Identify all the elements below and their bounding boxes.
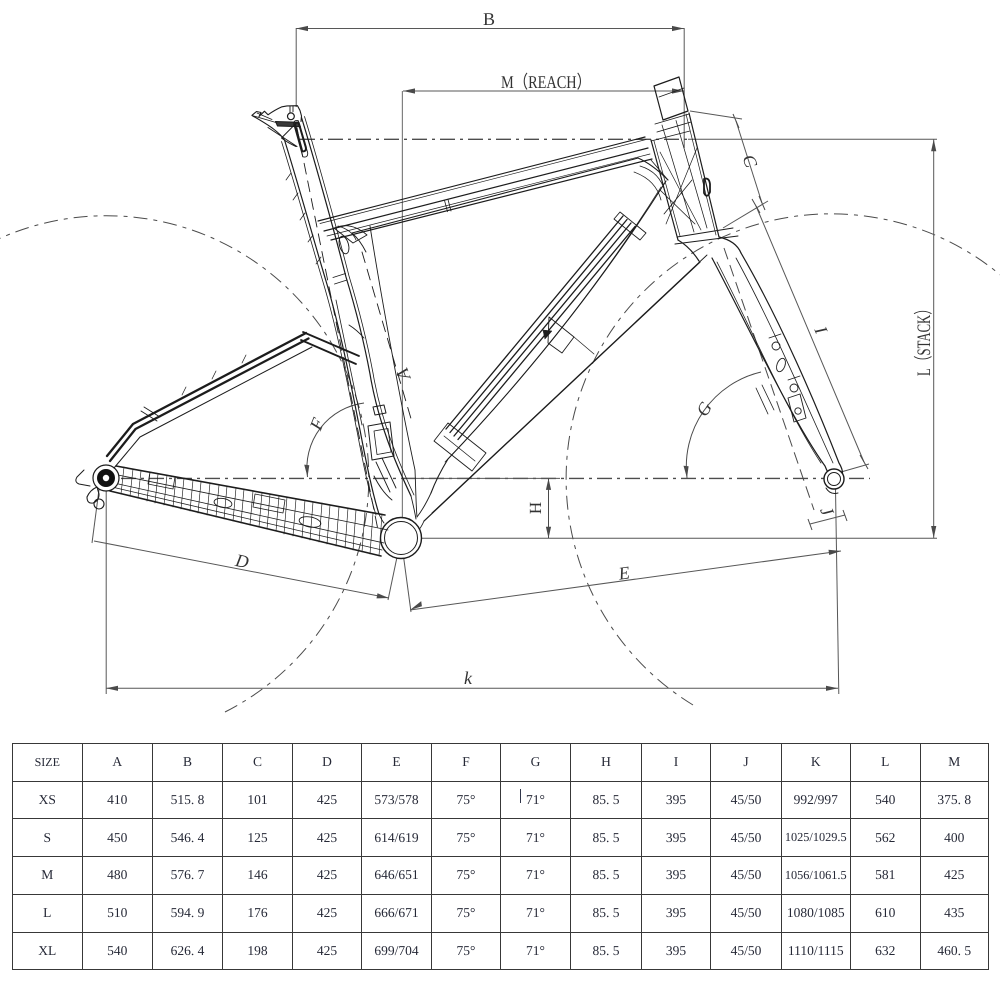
svg-text:G: G — [692, 398, 716, 419]
svg-text:L（STACK）: L（STACK） — [913, 302, 935, 376]
svg-text:k: k — [464, 668, 473, 688]
svg-text:B: B — [483, 9, 495, 29]
svg-text:F: F — [305, 414, 328, 434]
svg-text:E: E — [616, 562, 631, 583]
svg-text:C: C — [739, 152, 762, 171]
svg-text:I: I — [810, 322, 832, 337]
svg-text:H: H — [526, 502, 545, 514]
svg-text:D: D — [233, 550, 251, 572]
svg-text:M（REACH）: M（REACH） — [501, 72, 591, 92]
